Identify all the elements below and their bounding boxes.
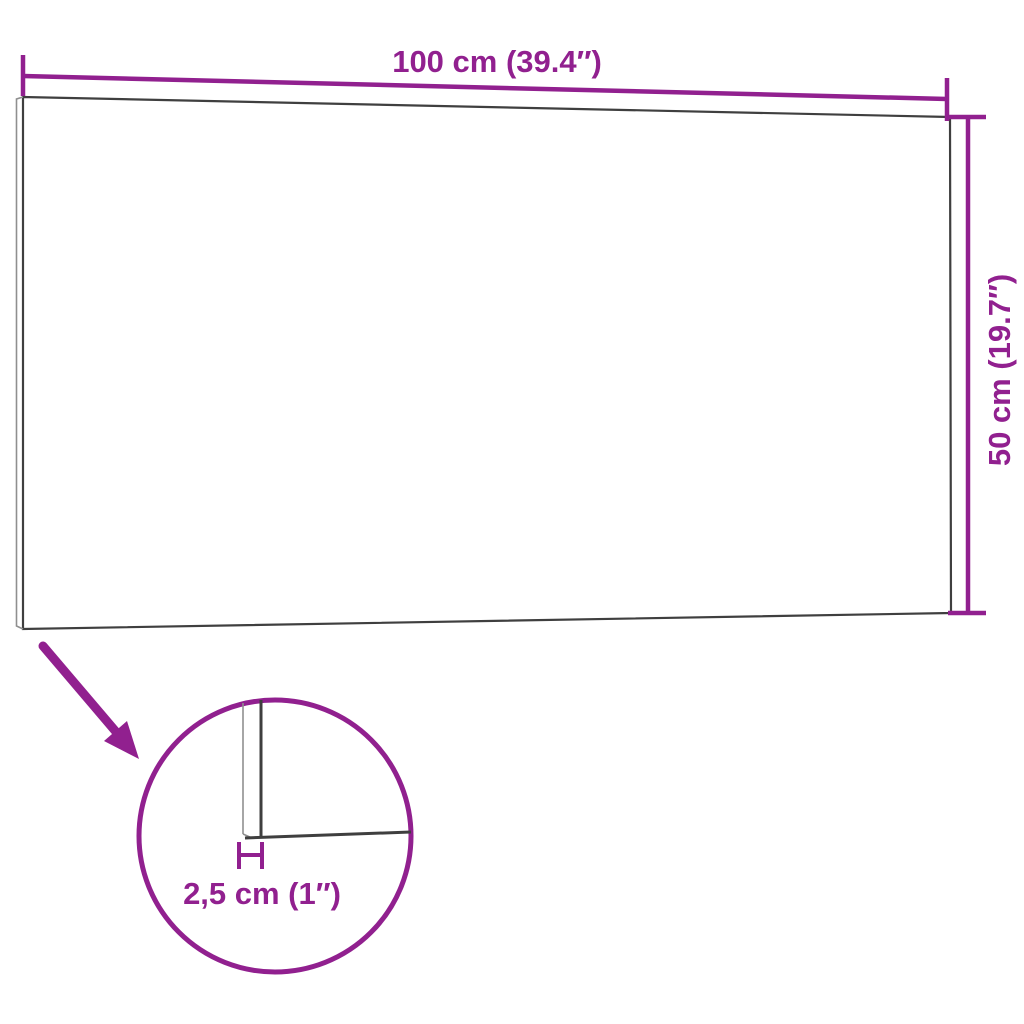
panel-outline — [17, 97, 952, 629]
detail-callout: 2,5 cm (1″) — [139, 700, 411, 972]
product-dimension-diagram: 100 cm (39.4″) 50 cm (19.7″) — [0, 0, 1024, 1024]
height-dimension — [948, 117, 986, 613]
zoom-arrow-shaft — [43, 646, 117, 733]
height-dimension-label: 50 cm (19.7″) — [982, 274, 1017, 466]
diagram-svg: 100 cm (39.4″) 50 cm (19.7″) — [0, 0, 1024, 1024]
width-dimension-line — [23, 76, 947, 99]
panel-front-face — [23, 97, 951, 629]
thickness-dimension — [239, 842, 262, 869]
width-dimension-label: 100 cm (39.4″) — [392, 44, 602, 79]
detail-panel-edge — [243, 700, 411, 838]
detail-bottom-edge — [245, 832, 411, 838]
zoom-arrow — [43, 646, 139, 759]
thickness-dimension-label: 2,5 cm (1″) — [183, 876, 341, 911]
